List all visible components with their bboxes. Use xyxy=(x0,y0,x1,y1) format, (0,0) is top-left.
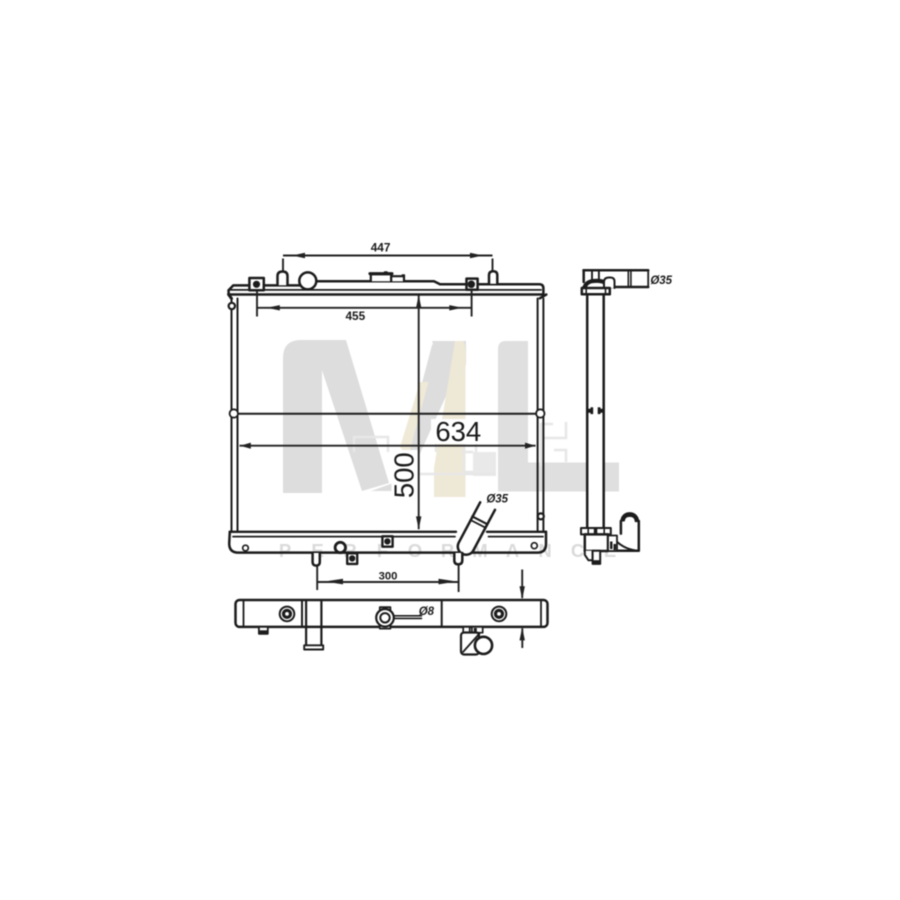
svg-text:455: 455 xyxy=(345,309,365,323)
svg-text:500: 500 xyxy=(389,452,420,498)
svg-text:Ø35: Ø35 xyxy=(650,275,672,287)
svg-text:A: A xyxy=(506,540,519,561)
svg-text:O: O xyxy=(408,540,422,561)
svg-text:Ø35: Ø35 xyxy=(486,493,508,505)
svg-text:300: 300 xyxy=(379,571,398,583)
svg-text:C: C xyxy=(571,540,584,561)
svg-text:Ø8: Ø8 xyxy=(419,606,435,618)
svg-text:R: R xyxy=(441,540,454,561)
svg-text:634: 634 xyxy=(435,416,481,447)
svg-text:P: P xyxy=(279,540,291,561)
svg-text:447: 447 xyxy=(371,240,391,254)
